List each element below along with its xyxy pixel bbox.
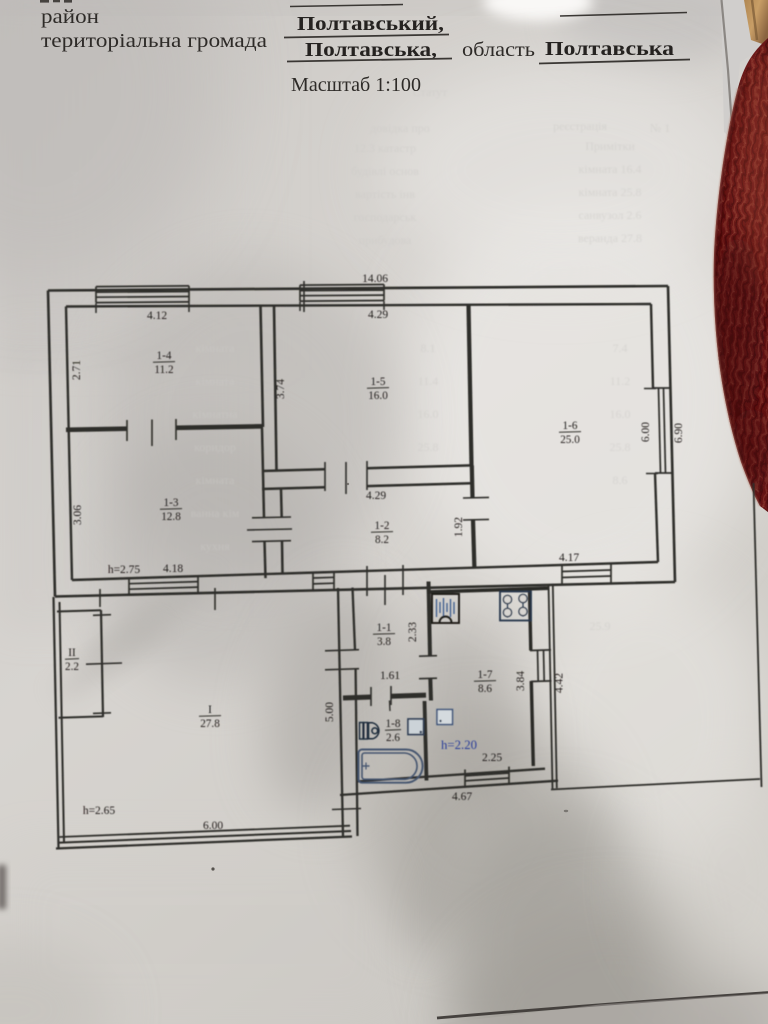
svg-text:II: II: [68, 647, 76, 659]
svg-text:16.0: 16.0: [460, 619, 481, 633]
svg-text:6.00: 6.00: [203, 820, 223, 832]
svg-text:Масштаб 1:100: Масштаб 1:100: [291, 74, 421, 96]
svg-text:вартість інв: вартість інв: [355, 187, 415, 201]
svg-text:2.25: 2.25: [482, 752, 502, 764]
svg-text:7.4: 7.4: [613, 341, 628, 355]
svg-text:Полтавська: Полтавська: [545, 38, 674, 60]
svg-text:кухня: кухня: [200, 539, 230, 553]
svg-text:11.2: 11.2: [154, 364, 173, 376]
svg-text:4.12: 4.12: [147, 310, 167, 322]
svg-text:3.06: 3.06: [72, 505, 84, 525]
svg-text:Полтавський,: Полтавський,: [297, 13, 444, 35]
svg-text:16.0: 16.0: [610, 407, 631, 421]
svg-text:прибудова: прибудова: [359, 233, 412, 247]
svg-text:8.6: 8.6: [478, 683, 492, 695]
svg-text:стор 4: стор 4: [69, 171, 81, 200]
svg-text:1-7: 1-7: [478, 669, 493, 681]
svg-text:11.4: 11.4: [418, 374, 439, 388]
svg-text:№ 1: № 1: [650, 121, 670, 135]
svg-text:h=2.65: h=2.65: [83, 805, 116, 817]
svg-text:реєстрація: реєстрація: [553, 119, 607, 133]
svg-text:будівлі основ: будівлі основ: [351, 164, 419, 178]
svg-text:1-3: 1-3: [164, 497, 179, 509]
svg-text:25.0: 25.0: [560, 434, 580, 446]
svg-text:25.8: 25.8: [418, 440, 439, 454]
svg-text:кімната: кімната: [196, 473, 236, 487]
svg-text:кімната: кімната: [196, 374, 236, 388]
svg-text:14.06: 14.06: [362, 273, 388, 285]
svg-text:8.1: 8.1: [421, 341, 436, 355]
svg-text:6.90: 6.90: [673, 423, 685, 443]
svg-text:1-8: 1-8: [386, 718, 401, 730]
svg-text:1-2: 1-2: [375, 520, 390, 532]
svg-text:4.29: 4.29: [366, 490, 386, 502]
svg-text:коридор: коридор: [194, 440, 236, 454]
svg-text:25.9: 25.9: [590, 619, 611, 633]
svg-text:8.2: 8.2: [375, 534, 389, 546]
svg-text:Примітки: Примітки: [585, 139, 635, 153]
svg-text:11.2: 11.2: [610, 374, 631, 388]
svg-text:5.00: 5.00: [324, 702, 336, 722]
svg-text:25.8: 25.8: [610, 440, 631, 454]
svg-text:район: район: [41, 6, 99, 28]
svg-text:кімната 25.8: кімната 25.8: [579, 185, 642, 199]
svg-text:16.0: 16.0: [368, 390, 388, 402]
svg-text:2.71: 2.71: [71, 360, 83, 380]
svg-text:3.84: 3.84: [515, 671, 527, 691]
svg-text:4.17: 4.17: [559, 552, 579, 564]
svg-text:1-6: 1-6: [563, 420, 578, 432]
svg-text:область: область: [462, 39, 535, 61]
svg-text:3.8: 3.8: [377, 636, 391, 648]
svg-text:2.2: 2.2: [65, 661, 79, 673]
svg-text:6.00: 6.00: [640, 422, 652, 442]
svg-text:територіальна громада: територіальна громада: [41, 30, 267, 52]
svg-text:санвузол 2.6: санвузол 2.6: [579, 208, 642, 222]
svg-text:1-4: 1-4: [157, 350, 172, 362]
svg-text:h=2.20: h=2.20: [441, 738, 477, 752]
svg-text:довідка про: довідка про: [370, 121, 430, 135]
svg-text:1-1: 1-1: [377, 622, 392, 634]
svg-text:1.92: 1.92: [453, 517, 465, 537]
svg-text:1-5: 1-5: [371, 376, 386, 388]
svg-text:4.42: 4.42: [554, 673, 566, 693]
svg-text:2.33: 2.33: [407, 622, 419, 642]
svg-text:1.61: 1.61: [380, 670, 400, 682]
svg-text:ванна кім: ванна кім: [191, 506, 240, 520]
svg-text:4.67: 4.67: [452, 791, 472, 803]
svg-text:кімнатна: кімнатна: [192, 407, 238, 421]
svg-text:4.18: 4.18: [163, 563, 183, 575]
svg-text:12.3 катастр: 12.3 катастр: [354, 141, 416, 155]
svg-text:27.8: 27.8: [200, 718, 220, 730]
svg-text:8.6: 8.6: [613, 473, 628, 487]
svg-text:4.29: 4.29: [368, 309, 388, 321]
svg-text:2.6: 2.6: [386, 732, 400, 744]
svg-text:3.74: 3.74: [275, 379, 287, 399]
svg-text:господарськ: господарськ: [354, 210, 417, 224]
svg-text:кімната: кімната: [196, 341, 236, 355]
svg-text:16.0: 16.0: [418, 407, 439, 421]
svg-text:h=2.75: h=2.75: [108, 564, 141, 576]
svg-text:12.8: 12.8: [161, 511, 181, 523]
svg-text:веранда 27.8: веранда 27.8: [578, 231, 642, 245]
svg-text:I: I: [208, 704, 212, 716]
svg-text:кімната 16.4: кімната 16.4: [579, 162, 642, 176]
svg-text:Полтавська,: Полтавська,: [305, 39, 437, 61]
